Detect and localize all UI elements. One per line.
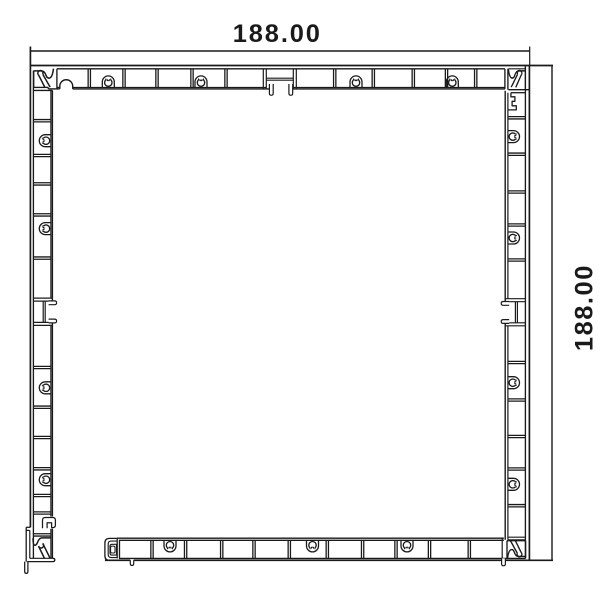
svg-text:188.00: 188.00 (233, 20, 322, 48)
svg-text:188.00: 188.00 (570, 264, 598, 351)
